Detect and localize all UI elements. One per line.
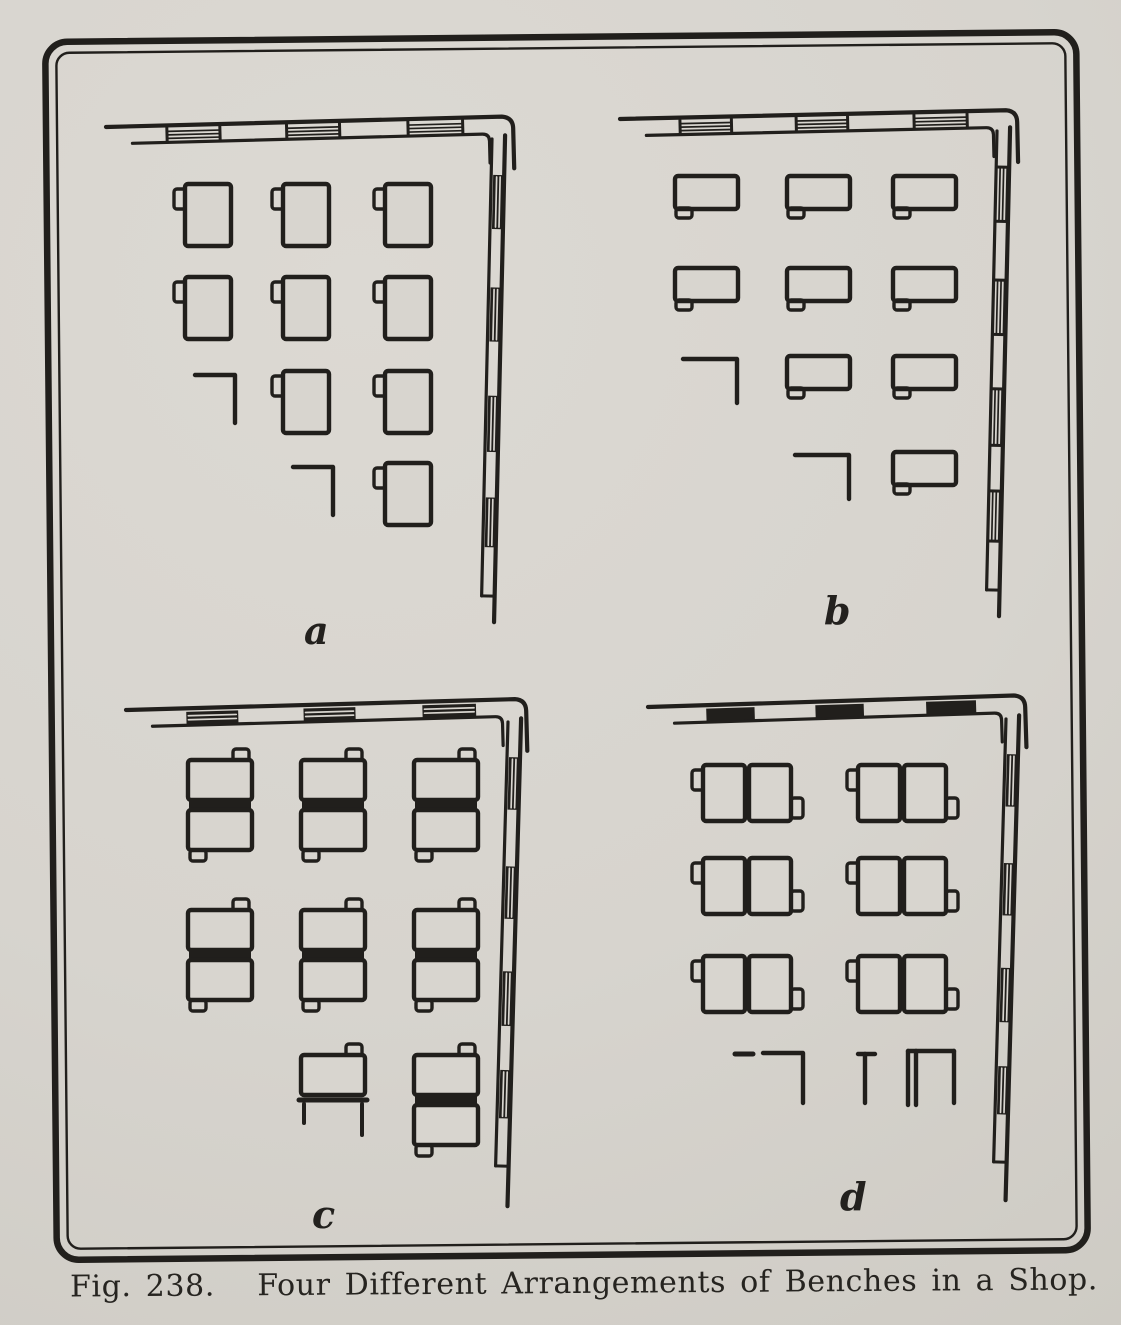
plan-c-label: c xyxy=(312,1196,335,1234)
figure-diagram xyxy=(0,0,1121,1325)
top-wall xyxy=(648,695,1026,759)
right-wall xyxy=(993,715,1020,1200)
top-wall xyxy=(126,699,527,762)
plan-d xyxy=(648,695,1026,1200)
right-wall xyxy=(481,135,505,622)
right-wall xyxy=(494,718,521,1206)
top-wall xyxy=(620,110,1018,171)
top-wall xyxy=(106,116,514,179)
plan-c xyxy=(126,699,527,1206)
plan-a-label: a xyxy=(304,612,329,650)
figure-caption: Fig. 238. Four Different Arrangements of… xyxy=(70,1262,1080,1304)
plan-a xyxy=(106,116,514,622)
book-page: a b c d Fig. 238. Four Different Arrange… xyxy=(0,0,1121,1325)
plan-d-label: d xyxy=(840,1178,867,1216)
plan-b-label: b xyxy=(824,592,851,630)
plan-b xyxy=(620,110,1018,616)
right-wall xyxy=(986,127,1010,616)
